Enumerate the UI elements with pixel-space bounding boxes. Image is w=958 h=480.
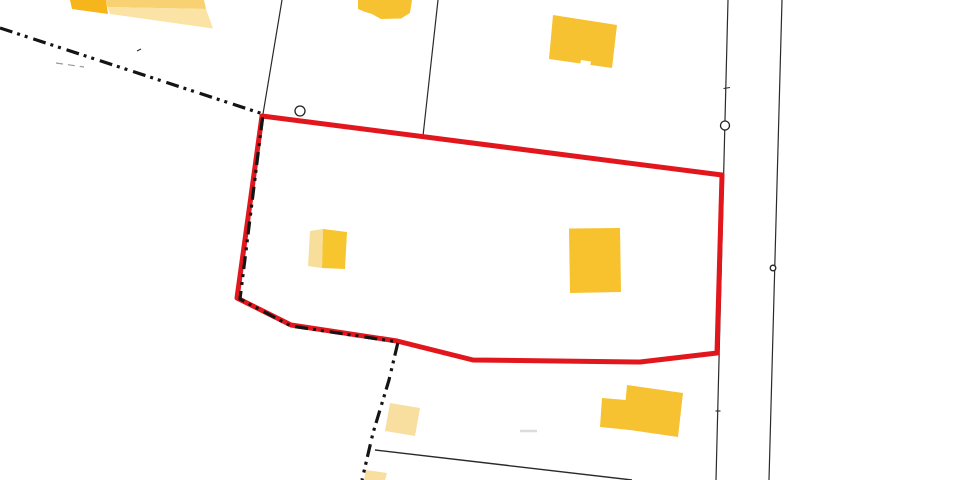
building-footprint-bottom-pale <box>385 403 420 436</box>
cadastral-map-viewport[interactable] <box>0 0 958 480</box>
tick-mark-right-line-upper <box>724 88 731 89</box>
parcel-line-topleft <box>263 0 282 114</box>
survey-marker-circle-right <box>721 121 730 130</box>
building-footprint-topmiddle <box>358 0 412 19</box>
building-footprint-topleft-dark <box>70 0 108 14</box>
tick-mark-topleft-speck <box>137 49 141 51</box>
survey-marker-circle-left <box>295 106 305 116</box>
building-footprint-topleft-pale <box>108 7 214 29</box>
building-footprint-inparcel-small-dark <box>322 229 347 269</box>
faint-dash-artifact <box>56 63 84 67</box>
building-footprint-topright <box>549 15 617 68</box>
parcel-line-right-outer <box>769 0 782 480</box>
building-footprint-inparcel-large <box>569 228 621 293</box>
survey-marker-circle-small <box>770 265 776 271</box>
building-footprint-bottom-main <box>623 385 683 437</box>
building-footprint-inparcel-small-pale <box>308 229 323 268</box>
building-footprint-bottomedge-pale <box>364 470 387 480</box>
building-footprint-bottom-ext <box>600 398 632 430</box>
faint-dot-artifact <box>747 147 750 150</box>
parcel-line-bottom <box>375 450 632 480</box>
map-canvas[interactable] <box>0 0 958 480</box>
parcel-line-topmiddle <box>423 0 438 136</box>
